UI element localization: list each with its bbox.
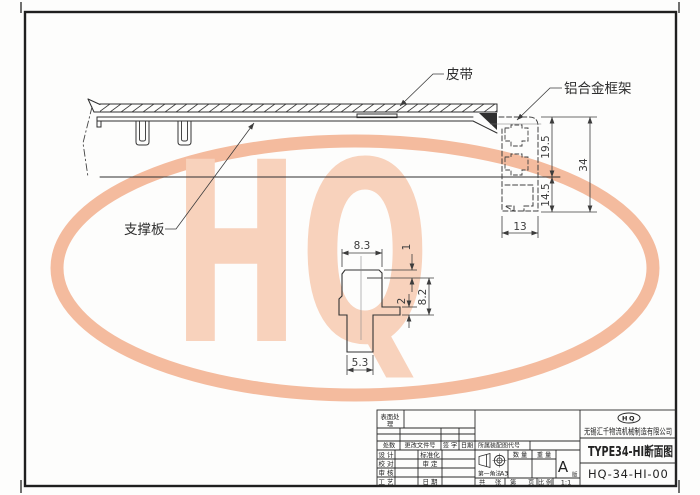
- footer-page: 页: [528, 480, 534, 487]
- title-block: 表面处 理 处数 更改文件号 签 字 日期 设 计 校 对 审 核 工 艺 标准…: [377, 410, 676, 487]
- footer-scale-value: 1:1: [561, 479, 571, 487]
- watermark-text: HQ: [172, 109, 430, 400]
- company-name: 无锡汇千物流机械制造有限公司: [584, 427, 672, 438]
- drawing-title: TYPE34-HI断面图: [588, 444, 673, 460]
- sign-row-process: 工 艺: [378, 478, 394, 486]
- channel: [136, 121, 149, 145]
- drawing-number: HQ-34-HI-00: [588, 467, 669, 481]
- sign-row-standard: 标准化: [420, 450, 440, 459]
- version-label: 版: [572, 471, 578, 479]
- dim-13: 13: [513, 221, 526, 233]
- belt-hatch: [100, 104, 497, 112]
- rev-count-label: 处数: [383, 442, 396, 450]
- frame-label: 铝合金框架: [564, 81, 632, 97]
- dim-8_3: 8.3: [354, 240, 371, 252]
- belt-label: 皮带: [446, 67, 473, 83]
- rev-date-label: 日期: [461, 442, 473, 450]
- projection-method-label: 第一角法: [478, 470, 501, 478]
- cad-canvas: HQ: [0, 0, 700, 495]
- dim-8_2: 8.2: [417, 289, 429, 306]
- frame-leader: [517, 88, 562, 120]
- belt-leader: [400, 74, 444, 106]
- projection-symbol: [479, 454, 507, 468]
- sheet-size: A3: [500, 471, 508, 478]
- footer-sheets: 张: [495, 479, 502, 487]
- corner-weld-fill: [479, 113, 497, 130]
- version-letter: A: [558, 458, 569, 476]
- rev-docno-label: 更改文件号: [405, 442, 436, 450]
- cone-symbol: [479, 454, 490, 468]
- dim-34: 34: [578, 158, 590, 172]
- surface-treatment-label: 表面处: [381, 412, 401, 421]
- dim-14_5: 14.5: [540, 183, 552, 206]
- qty-label: 数 量: [513, 451, 527, 459]
- footer-total: 共: [479, 479, 485, 487]
- sign-row-approve: 审 定: [422, 459, 438, 468]
- footer-no: 第: [510, 479, 516, 487]
- surface-treatment-label2: 理: [387, 420, 394, 428]
- dim-5_3: 5.3: [352, 357, 369, 369]
- sign-row-design: 设 计: [378, 450, 394, 459]
- company-logo-text: HQ: [622, 415, 636, 423]
- sign-row-review: 审 核: [378, 468, 394, 477]
- assembly-code-label: 所属装配图代号: [478, 442, 520, 450]
- rev-sign-label: 签 字: [443, 442, 457, 450]
- sign-row-check: 校 对: [378, 459, 394, 468]
- support-plate-label: 支撑板: [124, 222, 165, 238]
- break-line: [83, 107, 92, 177]
- weight-label: 重 量: [537, 451, 551, 459]
- sign-row-date: 日 期: [422, 478, 438, 486]
- frame-t-slot: [505, 125, 528, 146]
- footer-scale-label: 比 例: [538, 479, 552, 487]
- dim-2: 2: [396, 298, 408, 305]
- dim-19_5: 19.5: [540, 135, 552, 158]
- dim-1: 1: [401, 244, 413, 251]
- drawing-sheet: HQ: [0, 0, 700, 495]
